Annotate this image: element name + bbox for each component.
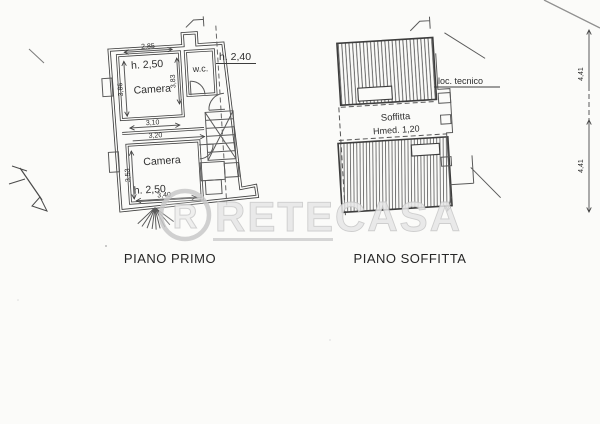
- speck: [17, 299, 19, 301]
- leader-line: [444, 30, 485, 60]
- floorplan-scan: 2,85 h. 2,50 Camera 3,86 3,83 w.c. 3,10 …: [0, 0, 600, 424]
- dim-285-label: 2,85: [141, 43, 155, 51]
- hmed-label: Hmed. 1,20: [373, 124, 420, 137]
- room-bottom-label: Camera: [143, 154, 181, 168]
- door-arc-bottom-room: [199, 144, 214, 159]
- chimney-mark: [185, 16, 204, 27]
- dim-310-label: 3,10: [146, 119, 160, 127]
- plan-piano-soffitta: Soffitta Hmed. 1,20: [331, 13, 502, 217]
- stray-mark: [29, 49, 44, 63]
- wc-label: w.c.: [191, 63, 208, 74]
- dim-441-lower: 4,41: [578, 159, 585, 173]
- scan-artifacts: [17, 0, 600, 341]
- dim-320-label: 3,20: [148, 132, 162, 140]
- stairs: [197, 111, 240, 195]
- roof-opening-top: [358, 86, 393, 101]
- watermark: R RETECASA: [161, 191, 462, 241]
- dim-383-label: 3,83: [170, 74, 178, 88]
- right-dimension-chain: 4,41 4,41: [578, 30, 589, 212]
- roof-opening-bottom: [411, 143, 440, 156]
- title-piano-primo: PIANO PRIMO: [124, 251, 216, 266]
- door-arc-corridor: [208, 93, 225, 110]
- dim-441-upper: 4,41: [578, 67, 585, 81]
- watermark-underbar: [213, 238, 333, 241]
- loc-tecnico-label: loc. tecnico: [438, 76, 483, 86]
- watermark-brand: RETECASA: [215, 193, 462, 240]
- dim-353-label: 3,53: [124, 168, 132, 182]
- wc-height-label: h. 2,40: [219, 51, 251, 63]
- door-arc-wc: [190, 80, 205, 95]
- chimney-mark: [409, 17, 430, 31]
- page-fold-line: [544, 0, 600, 28]
- speck: [105, 245, 107, 247]
- room-top-label: Camera: [133, 82, 171, 96]
- watermark-logo-letter: R: [173, 198, 198, 236]
- north-arrow: [9, 166, 47, 211]
- soffitta-label: Soffitta: [381, 111, 412, 124]
- roof-hatch-top: [336, 17, 437, 106]
- dim-386-label: 3,86: [117, 82, 125, 96]
- wc-height-annotation: h. 2,40: [216, 51, 256, 64]
- loc-tecnico-annotation: loc. tecnico: [434, 76, 500, 87]
- height-top-room-label: h. 2,50: [131, 58, 164, 72]
- north-arrowhead: [32, 197, 47, 211]
- title-piano-soffitta: PIANO SOFFITTA: [354, 251, 467, 266]
- speck: [329, 339, 331, 341]
